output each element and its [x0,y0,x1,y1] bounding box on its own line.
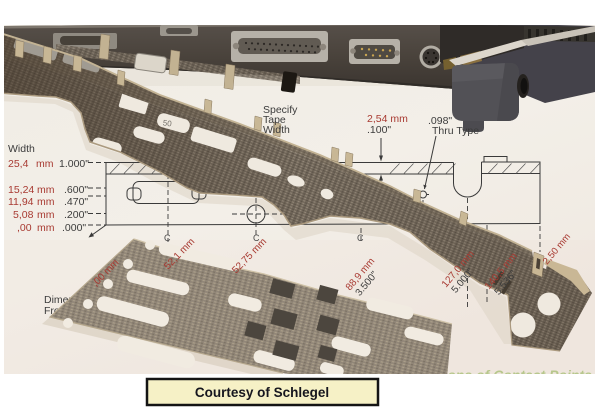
svg-text:mm: mm [37,184,55,196]
svg-text:mm: mm [37,196,55,208]
svg-text:mm: mm [36,158,54,170]
svg-text:.600": .600" [64,184,88,196]
svg-text:Thru Type: Thru Type [432,125,479,137]
svg-text:25,4: 25,4 [8,158,29,170]
svg-text:.100": .100" [367,124,391,136]
svg-text:.200": .200" [64,209,88,221]
svg-text:1.000": 1.000" [59,158,89,170]
svg-text:5,08: 5,08 [13,209,34,221]
svg-text:15,24: 15,24 [8,184,34,196]
svg-text:.470": .470" [64,196,88,208]
svg-text:.000": .000" [62,222,86,234]
svg-text:mm: mm [37,222,55,234]
svg-text:C: C [164,233,171,243]
svg-text:Width: Width [8,143,35,155]
svg-text:mm: mm [37,209,55,221]
svg-text:11,94: 11,94 [8,196,34,208]
svg-text:50: 50 [162,118,173,128]
svg-text:Courtesy of Schlegel: Courtesy of Schlegel [195,385,329,400]
svg-text:C: C [357,233,364,243]
svg-text:Width: Width [263,124,290,136]
svg-text:,00: ,00 [17,222,32,234]
